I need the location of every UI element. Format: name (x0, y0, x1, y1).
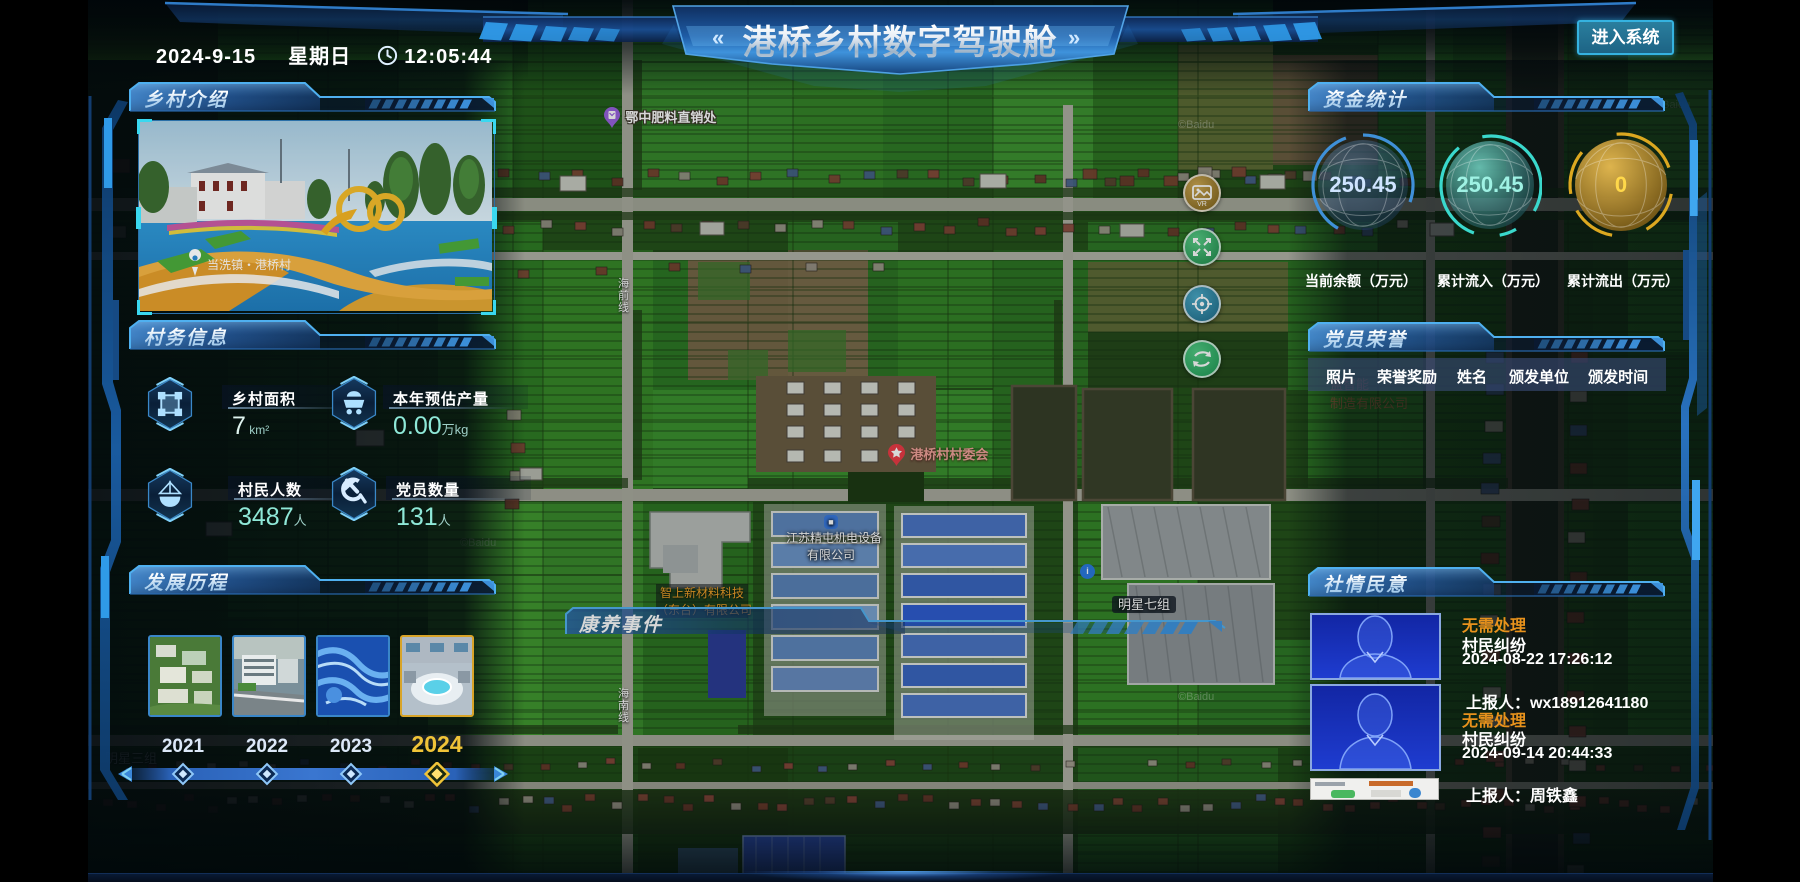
svg-text:©Baidu: ©Baidu (460, 537, 496, 549)
svg-text:©Baidu: ©Baidu (1178, 119, 1214, 131)
svg-text:©Baidu: ©Baidu (1178, 691, 1214, 703)
